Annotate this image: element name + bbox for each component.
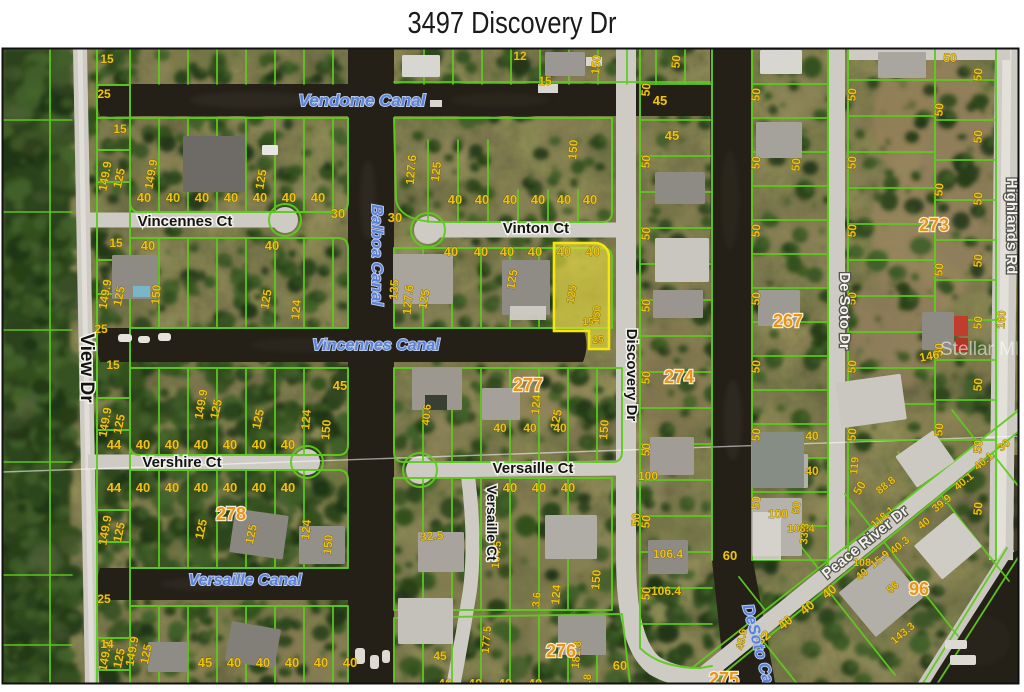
- svg-text:40: 40: [227, 655, 241, 670]
- svg-text:60: 60: [723, 548, 737, 563]
- svg-text:40: 40: [475, 192, 489, 207]
- svg-text:50: 50: [970, 501, 985, 516]
- svg-text:3.6: 3.6: [530, 592, 543, 608]
- svg-text:276: 276: [546, 641, 576, 661]
- svg-text:40: 40: [224, 190, 238, 205]
- svg-text:40: 40: [136, 437, 150, 452]
- svg-text:45: 45: [433, 649, 447, 663]
- svg-text:267: 267: [773, 311, 803, 331]
- svg-text:25: 25: [97, 87, 111, 101]
- svg-text:40: 40: [553, 421, 567, 435]
- svg-text:50: 50: [970, 315, 985, 330]
- svg-text:50: 50: [788, 157, 803, 172]
- svg-text:40: 40: [448, 192, 462, 207]
- svg-text:273: 273: [919, 215, 949, 235]
- svg-text:50: 50: [970, 377, 985, 392]
- svg-text:40: 40: [281, 480, 295, 495]
- svg-text:150: 150: [588, 569, 604, 590]
- svg-text:50: 50: [943, 51, 957, 65]
- svg-text:40: 40: [166, 190, 180, 205]
- svg-text:50: 50: [748, 291, 763, 306]
- svg-text:33.3: 33.3: [798, 523, 812, 545]
- svg-text:32.5: 32.5: [419, 528, 444, 544]
- svg-text:50: 50: [931, 262, 946, 277]
- svg-text:50: 50: [748, 155, 763, 170]
- svg-text:25: 25: [97, 592, 111, 606]
- svg-text:15: 15: [106, 358, 120, 372]
- svg-text:Vincennes Ct: Vincennes Ct: [138, 213, 233, 230]
- svg-text:50: 50: [844, 427, 859, 442]
- svg-text:45: 45: [653, 93, 667, 108]
- svg-text:44: 44: [107, 480, 122, 495]
- svg-text:124: 124: [528, 394, 544, 415]
- svg-text:Highlands Rd: Highlands Rd: [1003, 178, 1020, 275]
- svg-text:30: 30: [388, 210, 402, 225]
- svg-text:96: 96: [909, 579, 929, 599]
- svg-text:50: 50: [638, 82, 653, 97]
- svg-text:50: 50: [748, 427, 763, 442]
- svg-text:150: 150: [318, 419, 334, 440]
- svg-text:50: 50: [638, 226, 653, 241]
- svg-text:40: 40: [194, 437, 208, 452]
- svg-text:50: 50: [970, 67, 985, 82]
- svg-text:12: 12: [513, 49, 527, 63]
- svg-text:50: 50: [844, 87, 859, 102]
- svg-text:150: 150: [320, 534, 336, 555]
- svg-text:44: 44: [107, 437, 122, 452]
- svg-text:40: 40: [282, 190, 296, 205]
- svg-text:50: 50: [844, 223, 859, 238]
- svg-text:40: 40: [285, 655, 299, 670]
- svg-text:40: 40: [195, 190, 209, 205]
- svg-text:40: 40: [194, 480, 208, 495]
- svg-text:15: 15: [582, 317, 594, 328]
- svg-text:Vinton Ct: Vinton Ct: [503, 220, 569, 237]
- svg-text:40: 40: [528, 244, 542, 259]
- svg-text:40: 40: [586, 244, 600, 259]
- svg-text:50: 50: [844, 155, 859, 170]
- svg-text:50: 50: [970, 129, 985, 144]
- svg-text:40: 40: [474, 244, 488, 259]
- svg-text:40: 40: [141, 238, 155, 253]
- svg-text:40: 40: [311, 190, 325, 205]
- svg-text:50: 50: [970, 253, 985, 268]
- svg-text:40: 40: [444, 244, 458, 259]
- svg-text:50: 50: [791, 501, 804, 514]
- svg-text:125: 125: [428, 160, 444, 182]
- svg-text:40: 40: [252, 437, 266, 452]
- svg-text:40: 40: [314, 655, 328, 670]
- svg-text:3497 Discovery Dr: 3497 Discovery Dr: [408, 5, 617, 40]
- svg-text:Versaille Ct: Versaille Ct: [484, 485, 500, 561]
- svg-text:40: 40: [281, 437, 295, 452]
- svg-text:274: 274: [664, 367, 694, 387]
- svg-text:30: 30: [331, 206, 345, 221]
- svg-text:15: 15: [113, 122, 127, 136]
- svg-text:Vershire Ct: Vershire Ct: [142, 454, 221, 471]
- svg-text:14: 14: [100, 637, 114, 651]
- svg-text:119: 119: [848, 456, 862, 475]
- svg-text:40: 40: [253, 190, 267, 205]
- svg-text:277: 277: [513, 375, 543, 395]
- svg-text:View Dr: View Dr: [76, 333, 97, 403]
- svg-text:40: 40: [557, 244, 571, 259]
- svg-text:50: 50: [638, 154, 653, 169]
- svg-text:50: 50: [628, 512, 643, 527]
- svg-text:40: 40: [165, 437, 179, 452]
- svg-text:278: 278: [216, 504, 246, 524]
- svg-text:40: 40: [343, 655, 357, 670]
- svg-text:50: 50: [638, 442, 653, 457]
- svg-text:Versaille Ct: Versaille Ct: [493, 460, 574, 477]
- svg-text:150: 150: [588, 54, 604, 75]
- svg-text:50: 50: [748, 223, 763, 238]
- svg-text:60: 60: [613, 658, 627, 673]
- svg-text:45: 45: [665, 128, 679, 143]
- svg-text:160: 160: [995, 310, 1009, 329]
- svg-text:40: 40: [265, 238, 279, 253]
- svg-text:124: 124: [298, 519, 314, 540]
- svg-text:50: 50: [931, 182, 946, 197]
- svg-text:40: 40: [223, 480, 237, 495]
- svg-text:40: 40: [805, 464, 819, 478]
- svg-text:106.4: 106.4: [653, 547, 683, 561]
- svg-text:50: 50: [668, 54, 683, 69]
- svg-text:40: 40: [523, 421, 537, 435]
- svg-text:Vendome Canal: Vendome Canal: [299, 91, 427, 110]
- svg-text:40: 40: [557, 192, 571, 207]
- svg-text:150: 150: [148, 284, 164, 305]
- svg-text:150: 150: [565, 139, 581, 160]
- svg-text:106.4: 106.4: [651, 584, 681, 598]
- svg-text:100: 100: [638, 469, 658, 483]
- svg-text:40: 40: [561, 480, 575, 495]
- svg-text:15: 15: [109, 236, 123, 250]
- svg-text:40: 40: [165, 480, 179, 495]
- svg-text:Versaille Canal: Versaille Canal: [188, 572, 302, 589]
- svg-text:50: 50: [931, 102, 946, 117]
- svg-text:177.5: 177.5: [480, 626, 494, 654]
- svg-text:127.6: 127.6: [400, 284, 417, 315]
- svg-text:45: 45: [333, 378, 347, 393]
- svg-text:Discovery Dr: Discovery Dr: [623, 329, 640, 422]
- svg-text:50: 50: [970, 191, 985, 206]
- svg-text:40: 40: [252, 480, 266, 495]
- svg-text:150: 150: [596, 419, 612, 440]
- svg-text:40: 40: [532, 480, 546, 495]
- svg-text:40: 40: [256, 655, 270, 670]
- svg-text:127.6: 127.6: [403, 154, 420, 185]
- svg-text:De Soto Dr: De Soto Dr: [836, 272, 853, 350]
- svg-text:40: 40: [137, 190, 151, 205]
- svg-text:15: 15: [100, 52, 114, 66]
- svg-text:135: 135: [386, 279, 402, 300]
- svg-text:40: 40: [136, 480, 150, 495]
- svg-text:50: 50: [748, 495, 763, 510]
- svg-text:15: 15: [538, 74, 552, 88]
- svg-text:124: 124: [288, 299, 304, 320]
- svg-text:50: 50: [931, 422, 946, 437]
- svg-text:25: 25: [592, 335, 604, 346]
- svg-text:40: 40: [493, 421, 507, 435]
- svg-text:40: 40: [805, 429, 819, 443]
- svg-text:Vincennes Canal: Vincennes Canal: [312, 337, 440, 354]
- svg-text:124: 124: [548, 584, 564, 605]
- svg-text:40: 40: [500, 244, 514, 259]
- svg-text:40: 40: [223, 437, 237, 452]
- svg-text:Balboa Canal: Balboa Canal: [368, 204, 385, 306]
- svg-text:100: 100: [768, 507, 788, 521]
- svg-text:50: 50: [748, 87, 763, 102]
- svg-text:50: 50: [844, 359, 859, 374]
- svg-text:40: 40: [531, 192, 545, 207]
- svg-text:40.6: 40.6: [420, 404, 434, 426]
- svg-text:50: 50: [970, 439, 985, 454]
- svg-text:45: 45: [198, 655, 212, 670]
- svg-text:40: 40: [583, 192, 597, 207]
- svg-text:124: 124: [298, 409, 314, 430]
- svg-text:40: 40: [503, 480, 517, 495]
- svg-text:50: 50: [748, 359, 763, 374]
- svg-text:Stellar MLS: Stellar MLS: [940, 339, 1024, 360]
- svg-text:50: 50: [638, 298, 653, 313]
- svg-text:40: 40: [503, 192, 517, 207]
